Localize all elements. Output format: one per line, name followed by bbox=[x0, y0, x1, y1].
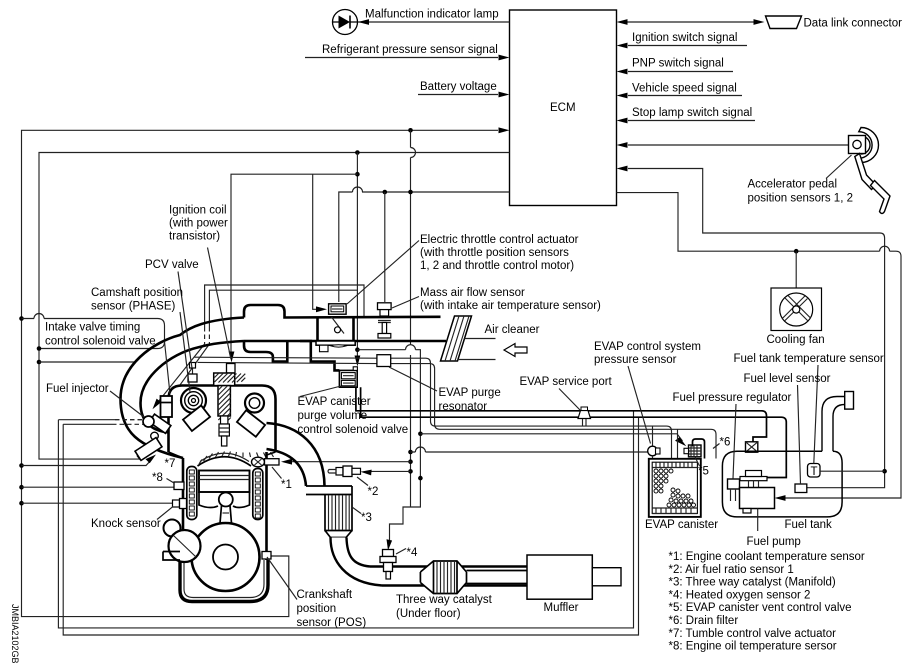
svg-text:position sensors 1, 2: position sensors 1, 2 bbox=[748, 193, 853, 205]
svg-text:EVAP purge: EVAP purge bbox=[439, 387, 501, 399]
svg-text:*3: *3 bbox=[361, 512, 372, 524]
svg-text:EVAP canister: EVAP canister bbox=[645, 519, 718, 531]
svg-text:Fuel pump: Fuel pump bbox=[747, 536, 801, 548]
svg-text:Accelerator pedal: Accelerator pedal bbox=[748, 179, 838, 191]
svg-text:EVAP control system: EVAP control system bbox=[594, 341, 701, 353]
svg-text:Fuel injector: Fuel injector bbox=[46, 383, 109, 395]
svg-text:PCV valve: PCV valve bbox=[145, 259, 199, 271]
svg-text:Stop lamp switch signal: Stop lamp switch signal bbox=[632, 107, 752, 119]
svg-text:*5: *5 bbox=[698, 466, 709, 478]
svg-text:1, 2 and throttle control moto: 1, 2 and throttle control motor) bbox=[420, 260, 574, 272]
svg-text:*2: Air fuel ratio sensor 1: *2: Air fuel ratio sensor 1 bbox=[669, 564, 794, 576]
svg-text:Knock sensor: Knock sensor bbox=[91, 518, 161, 530]
svg-text:Data link connector: Data link connector bbox=[804, 18, 903, 30]
svg-text:*1: Engine coolant temperature: *1: Engine coolant temperature sensor bbox=[669, 551, 865, 563]
svg-text:JMBIA2102GB: JMBIA2102GB bbox=[10, 604, 20, 664]
svg-text:resonator: resonator bbox=[439, 401, 488, 413]
svg-text:*6: Drain filter: *6: Drain filter bbox=[669, 615, 739, 627]
svg-text:Intake valve timing: Intake valve timing bbox=[45, 322, 140, 334]
svg-text:Vehicle speed signal: Vehicle speed signal bbox=[632, 83, 737, 95]
svg-text:*7: Tumble control valve actua: *7: Tumble control valve actuator bbox=[669, 628, 837, 640]
svg-text:position: position bbox=[297, 603, 337, 615]
svg-text:purge volume: purge volume bbox=[298, 410, 368, 422]
svg-text:Muffler: Muffler bbox=[544, 602, 579, 614]
svg-text:sensor (PHASE): sensor (PHASE) bbox=[91, 301, 176, 313]
svg-text:*8: Engine oil temperature ser: *8: Engine oil temperature sersor bbox=[669, 641, 837, 653]
svg-text:Ignition switch signal: Ignition switch signal bbox=[632, 32, 737, 44]
svg-text:Refrigerant pressure sensor si: Refrigerant pressure sensor signal bbox=[322, 44, 498, 56]
svg-text:(with intake air temperature s: (with intake air temperature sensor) bbox=[420, 300, 601, 312]
svg-text:(with throttle position sensor: (with throttle position sensors bbox=[420, 247, 569, 259]
svg-text:control solenoid valve: control solenoid valve bbox=[45, 336, 156, 348]
svg-text:*7: *7 bbox=[165, 458, 176, 470]
svg-text:control solenoid valve: control solenoid valve bbox=[298, 424, 409, 436]
svg-text:T: T bbox=[811, 466, 818, 478]
svg-text:Malfunction indicator lamp: Malfunction indicator lamp bbox=[365, 9, 499, 21]
svg-text:Air cleaner: Air cleaner bbox=[485, 324, 540, 336]
svg-text:PNP switch signal: PNP switch signal bbox=[632, 58, 724, 70]
svg-text:*4: *4 bbox=[407, 547, 418, 559]
svg-text:Fuel level sensor: Fuel level sensor bbox=[744, 373, 831, 385]
svg-text:(Under floor): (Under floor) bbox=[396, 608, 461, 620]
svg-text:Fuel pressure regulator: Fuel pressure regulator bbox=[673, 392, 792, 404]
svg-text:*3: Three way catalyst (Manifo: *3: Three way catalyst (Manifold) bbox=[669, 577, 836, 589]
svg-text:Crankshaft: Crankshaft bbox=[297, 589, 353, 601]
svg-text:*6: *6 bbox=[720, 437, 731, 449]
svg-text:Fuel tank: Fuel tank bbox=[785, 519, 833, 531]
svg-text:ECM: ECM bbox=[550, 102, 576, 114]
svg-text:*4: Heated oxygen sensor 2: *4: Heated oxygen sensor 2 bbox=[669, 589, 811, 601]
svg-text:*5: EVAP canister vent control: *5: EVAP canister vent control valve bbox=[669, 602, 852, 614]
svg-text:Electric throttle control actu: Electric throttle control actuator bbox=[420, 234, 579, 246]
svg-text:Cooling fan: Cooling fan bbox=[767, 334, 825, 346]
svg-text:(with power: (with power bbox=[169, 218, 228, 230]
svg-text:sensor (POS): sensor (POS) bbox=[297, 617, 367, 629]
svg-text:transistor): transistor) bbox=[169, 231, 220, 243]
svg-text:*8: *8 bbox=[152, 472, 163, 484]
svg-text:Mass air flow sensor: Mass air flow sensor bbox=[420, 287, 525, 299]
svg-text:Battery voltage: Battery voltage bbox=[420, 81, 497, 93]
svg-text:EVAP service port: EVAP service port bbox=[520, 376, 613, 388]
svg-text:Camshaft position: Camshaft position bbox=[91, 287, 183, 299]
svg-text:*2: *2 bbox=[368, 486, 379, 498]
svg-text:*1: *1 bbox=[281, 479, 292, 491]
svg-text:Three way catalyst: Three way catalyst bbox=[396, 594, 493, 606]
svg-text:pressure sensor: pressure sensor bbox=[594, 354, 677, 366]
svg-text:Ignition coil: Ignition coil bbox=[169, 205, 227, 217]
svg-text:Fuel tank temperature sensor: Fuel tank temperature sensor bbox=[734, 353, 884, 365]
